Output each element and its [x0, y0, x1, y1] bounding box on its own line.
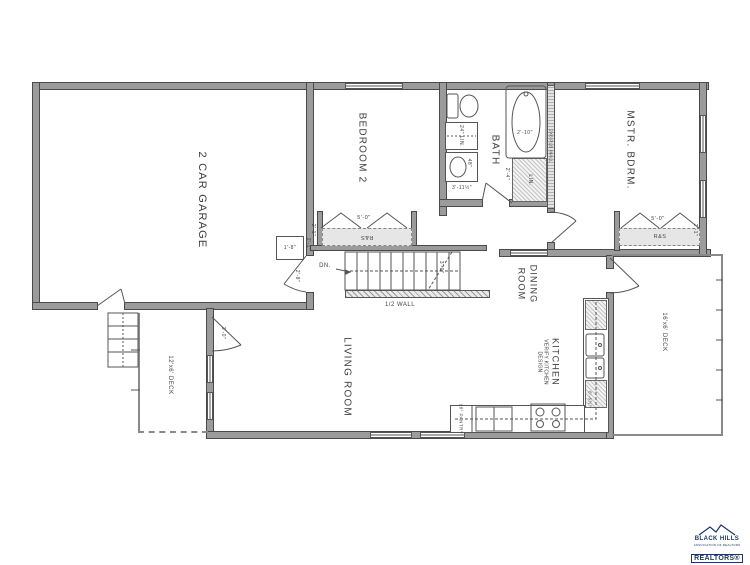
dim-counter: 6'-6½" [588, 391, 593, 407]
dim-bedroom2-closet: 5'-0" [357, 215, 370, 221]
label-deck-right: 16'x6' DECK [661, 312, 667, 351]
bath-door [482, 183, 512, 203]
master-door [551, 212, 576, 243]
realtor-logo: BLACK HILLS ASSOCIATION OF REALTORS REAL… [691, 524, 743, 565]
range [531, 404, 565, 431]
label-half-wall: 1/2 WALL [385, 302, 415, 308]
label-rs-bedroom2: R&S [361, 234, 374, 240]
fixtures-overlay [0, 0, 750, 563]
label-deck-left: 12'x6' DECK [167, 355, 173, 394]
dim-garage-door: 2'-8" [294, 270, 300, 282]
dim-stair-width: 3'-0" [438, 261, 444, 273]
down-arrow-icon [336, 269, 350, 274]
label-rs-master: R&S [654, 234, 667, 240]
label-living-room: LIVING ROOM [342, 337, 353, 417]
logo-subtitle: ASSOCIATION OF REALTORS [691, 543, 743, 547]
label-plb-wall: 2X6 PLB WALL [549, 129, 554, 163]
label-garage: 2 CAR GARAGE [196, 152, 208, 249]
label-bath: BATH [490, 135, 501, 166]
logo-name: BLACK HILLS [691, 536, 743, 542]
dim-linen-depth: 2'-4" [504, 168, 510, 180]
dim-hall-closet-depth: 2'-1" [305, 238, 311, 250]
vanity-sink [450, 157, 466, 177]
label-pantry: 18" PANTRY [459, 404, 464, 435]
label-dining-room: DINING ROOM [515, 265, 538, 304]
label-bedroom2: BEDROOM 2 [357, 113, 368, 184]
label-linen-24: 24" LIN. [458, 125, 464, 147]
mountain-icon [697, 524, 737, 536]
label-dn: DN. [319, 263, 331, 269]
dim-master-closet: 5'-0" [651, 216, 664, 222]
dim-tub: 2'-10" [517, 130, 533, 136]
bathtub [506, 86, 546, 158]
label-master-linen: LIN. [527, 174, 533, 185]
toilet [447, 94, 478, 118]
dim-master-closet-depth: 2'-1" [692, 224, 698, 236]
floorplan-page: { "plan": { "rooms": { "garage": "2 CAR … [0, 0, 750, 563]
label-master-bedroom: MSTR. BDRM. [625, 110, 636, 189]
logo-realtors: REALTORS® [691, 554, 743, 563]
deck-right-door [610, 258, 639, 293]
entry-steps [108, 313, 138, 367]
dim-deck-door: 3'-0" [220, 327, 226, 339]
dim-vanity: 48" [466, 159, 472, 168]
label-kitchen: KITCHEN VERIFY KITCHEN DESIGN [536, 338, 561, 386]
counter-centerline [455, 300, 596, 419]
kitchen-sink [586, 334, 604, 378]
deck-left-door [212, 317, 241, 351]
dim-bath-wall: 3'-11½" [452, 185, 472, 191]
deck-rail-ticks [131, 280, 723, 400]
dim-bedroom2-closet-depth: 2'-1" [310, 224, 316, 236]
dim-hall-closet: 1'-8" [284, 245, 296, 251]
garage-service-door [97, 289, 125, 306]
